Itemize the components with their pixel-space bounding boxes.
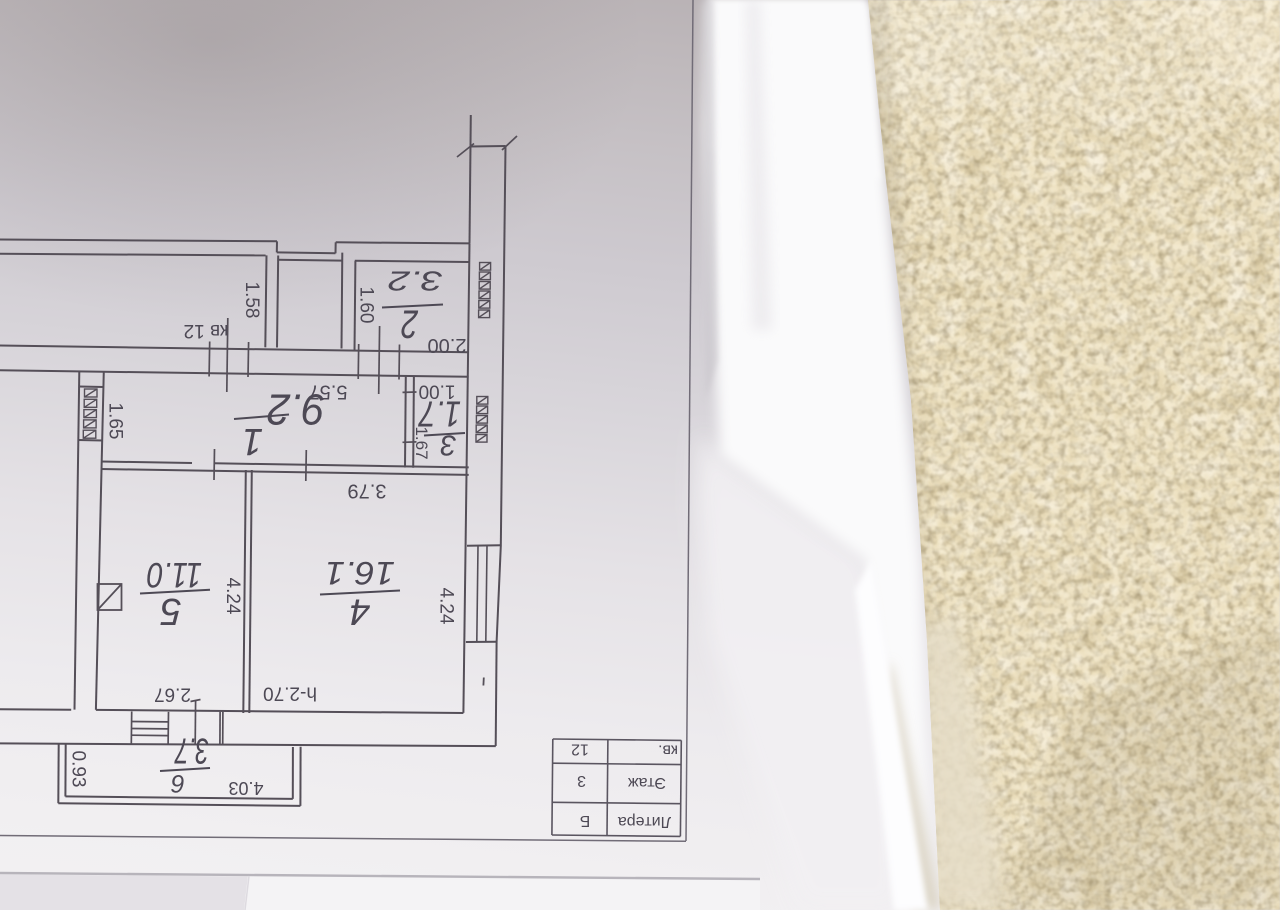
svg-text:6: 6 [171,769,185,797]
svg-text:4: 4 [350,592,371,633]
svg-text:1.67: 1.67 [412,426,431,459]
svg-text:1.60: 1.60 [356,287,377,324]
svg-text:h-2.70: h-2.70 [263,683,317,704]
svg-text:Этаж: Этаж [628,774,667,791]
svg-text:0.93: 0.93 [67,751,88,788]
svg-text:Б: Б [580,812,591,829]
svg-text:5: 5 [160,590,182,632]
svg-text:1: 1 [242,420,263,462]
svg-text:3.7: 3.7 [174,731,209,772]
svg-text:3: 3 [577,772,586,789]
svg-text:Литера: Литера [618,813,671,830]
svg-text:кв.: кв. [658,742,678,759]
svg-text:16.1: 16.1 [325,555,395,591]
svg-text:4.03: 4.03 [228,778,263,798]
svg-text:2.00: 2.00 [428,334,467,356]
svg-text:кв 12: кв 12 [184,320,229,341]
svg-text:9.2: 9.2 [267,385,325,434]
svg-text:2.67: 2.67 [154,684,191,705]
svg-text:3.79: 3.79 [348,480,387,502]
svg-text:2: 2 [401,302,419,346]
svg-text:4.24: 4.24 [436,588,457,625]
svg-text:3.2: 3.2 [387,266,443,297]
svg-text:4.24: 4.24 [222,578,243,615]
svg-text:12: 12 [571,741,589,758]
svg-text:1.65: 1.65 [105,403,126,440]
svg-text:3: 3 [440,429,456,461]
svg-text:1.58: 1.58 [241,282,262,319]
svg-text:11.0: 11.0 [147,555,202,594]
